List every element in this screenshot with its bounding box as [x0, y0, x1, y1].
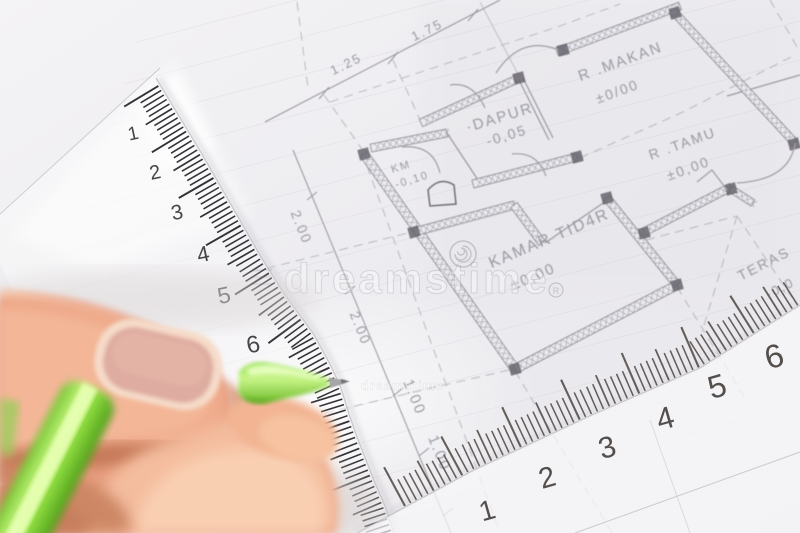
svg-text:dreamstime: dreamstime: [284, 255, 550, 302]
svg-text:dreamstime: dreamstime: [361, 378, 444, 393]
svg-text:R: R: [553, 286, 560, 296]
